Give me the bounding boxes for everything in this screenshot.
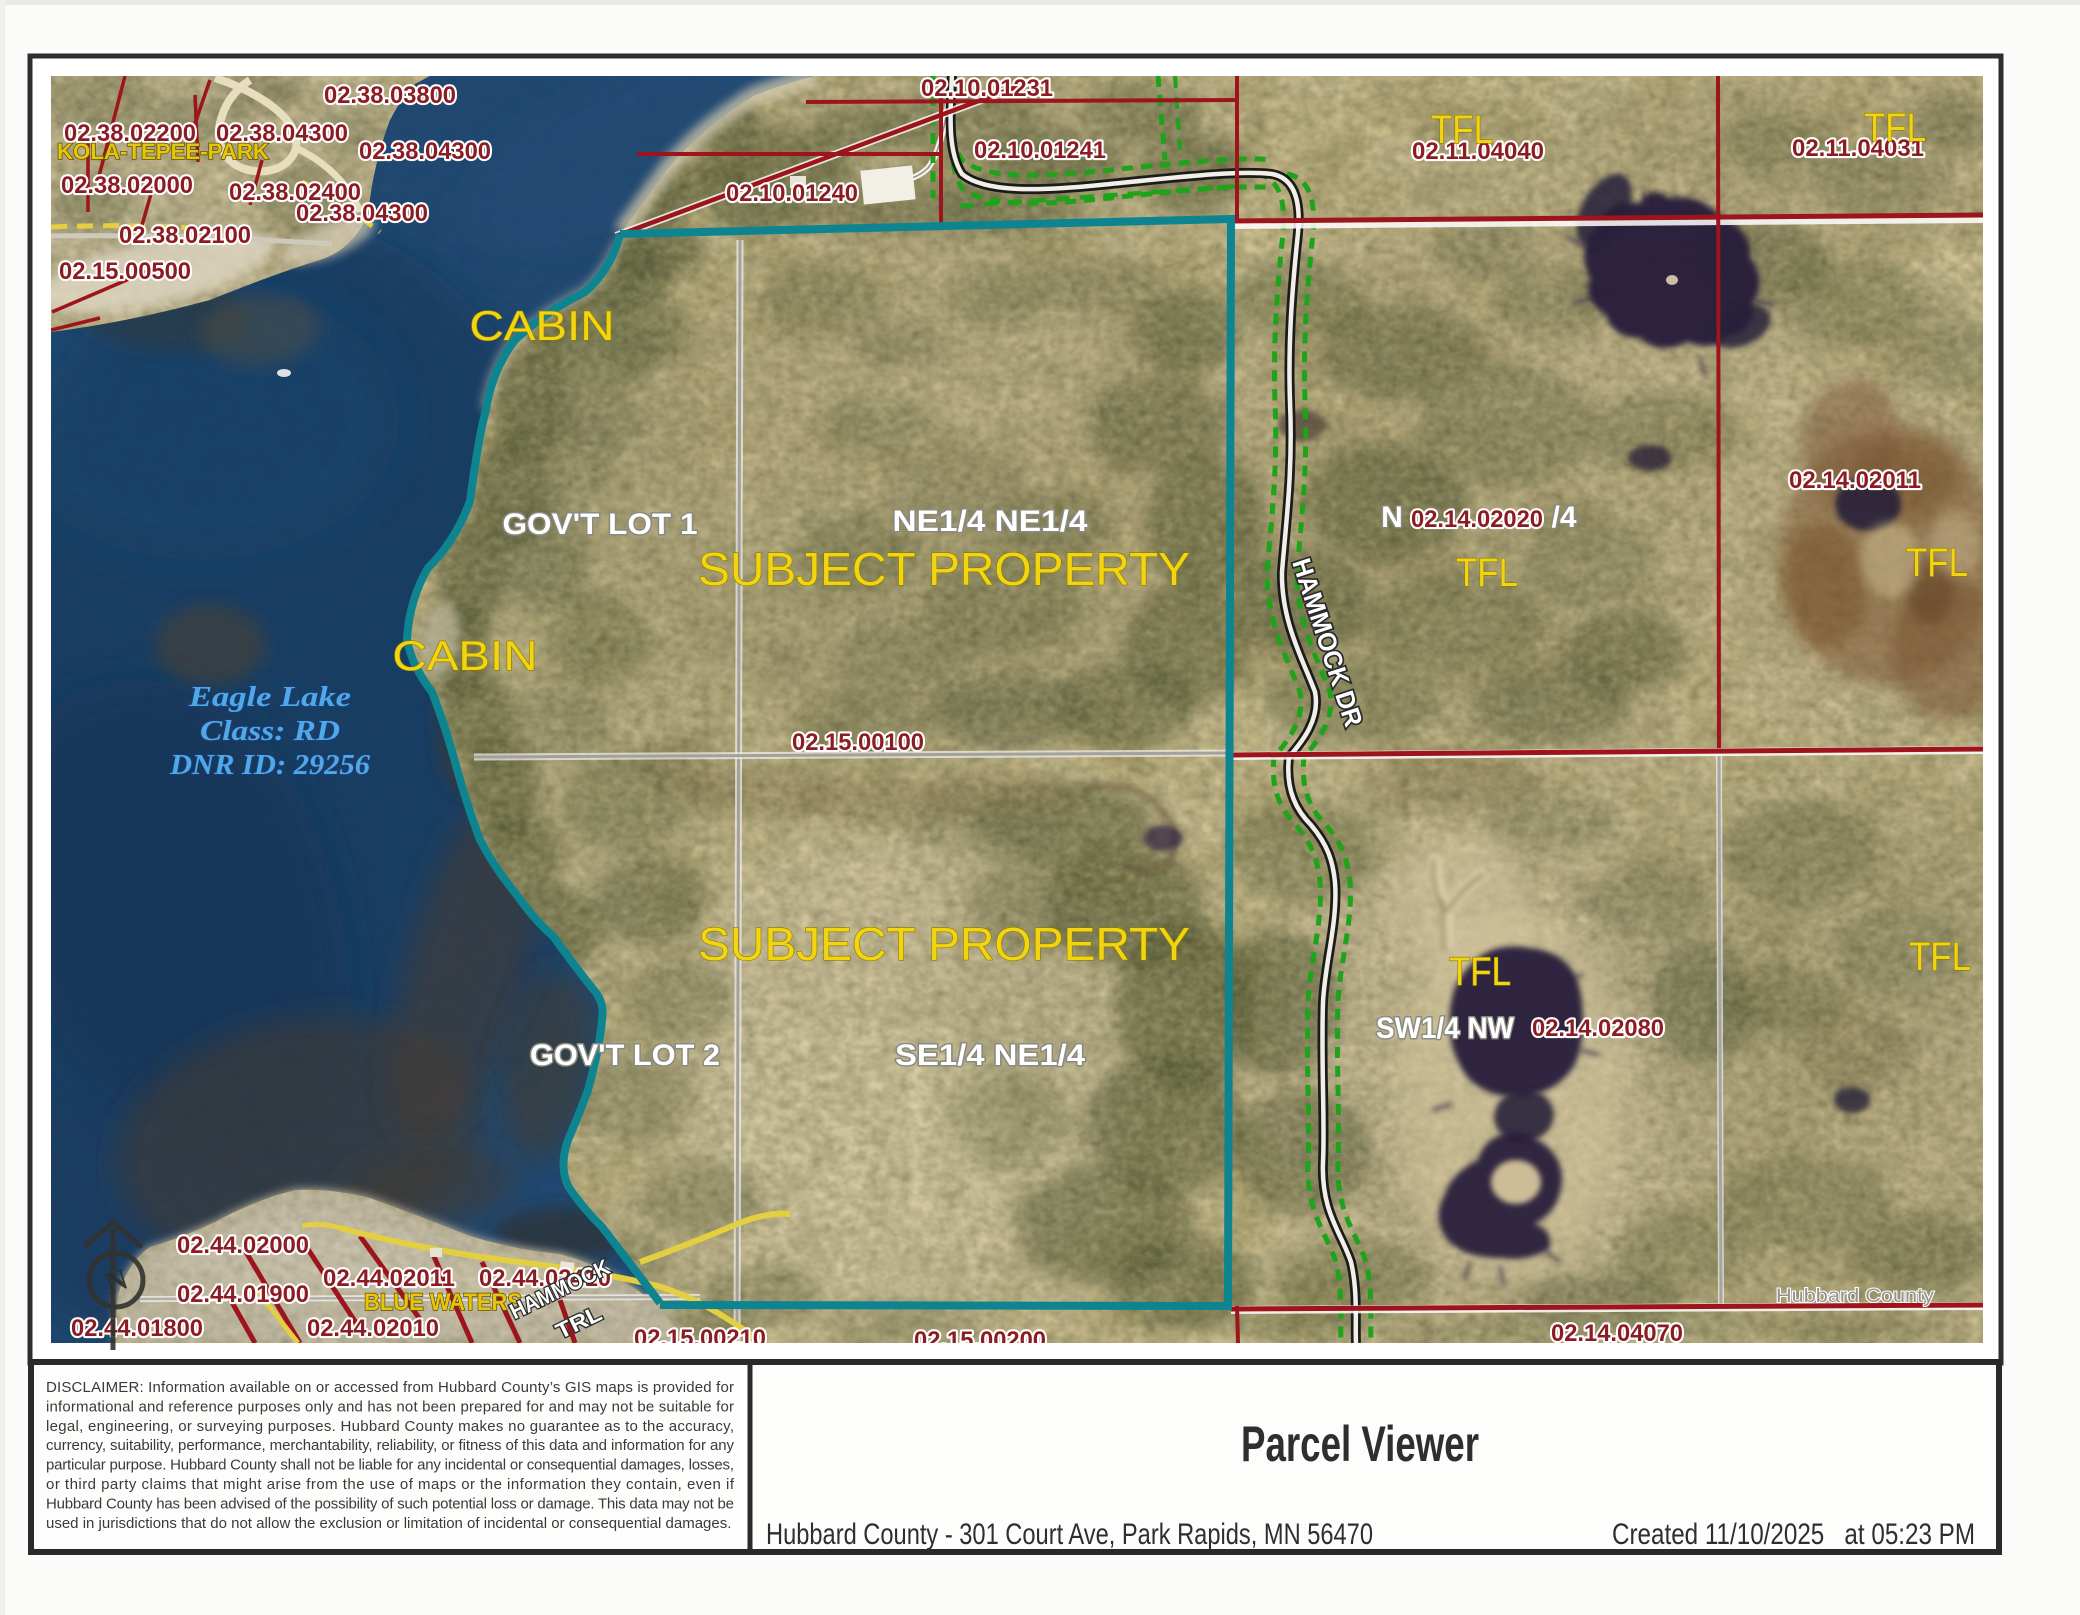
svg-text:GOV'T LOT 2: GOV'T LOT 2 xyxy=(530,1039,720,1072)
svg-text:02.44.02010: 02.44.02010 xyxy=(307,1315,439,1342)
svg-text:Hubbard County has been advise: Hubbard County has been advised of the p… xyxy=(46,1495,734,1512)
svg-text:02.15.00100: 02.15.00100 xyxy=(792,729,924,756)
svg-text:NE1/4 NE1/4: NE1/4 NE1/4 xyxy=(893,505,1088,538)
svg-text:Hubbard County - 301 Court Ave: Hubbard County - 301 Court Ave, Park Rap… xyxy=(766,1518,1373,1551)
svg-text:DNR ID: 29256: DNR ID: 29256 xyxy=(169,750,370,781)
svg-text:Parcel Viewer: Parcel Viewer xyxy=(1241,1416,1479,1472)
svg-text:02.38.02000: 02.38.02000 xyxy=(61,172,193,199)
svg-text:currency, suitability, perform: currency, suitability, performance, merc… xyxy=(46,1437,735,1454)
svg-text:02.44.01900: 02.44.01900 xyxy=(177,1281,309,1308)
svg-text:SW1/4 NW: SW1/4 NW xyxy=(1376,1012,1515,1045)
svg-text:Eagle Lake: Eagle Lake xyxy=(188,682,351,713)
svg-text:Class: RD: Class: RD xyxy=(200,716,340,747)
svg-text:02.38.03800: 02.38.03800 xyxy=(324,82,456,109)
svg-text:02.44.02011: 02.44.02011 xyxy=(323,1265,455,1292)
svg-text:02.44.01800: 02.44.01800 xyxy=(71,1315,203,1342)
svg-text:GOV'T LOT 1: GOV'T LOT 1 xyxy=(503,508,698,541)
svg-text:Created 11/10/2025 at 05:23: Created 11/10/2025 at 05:23 PM xyxy=(1612,1518,1975,1551)
svg-text:SE1/4 NE1/4: SE1/4 NE1/4 xyxy=(895,1039,1085,1072)
svg-text:TFL: TFL xyxy=(1864,106,1926,150)
svg-text:02.10.01240: 02.10.01240 xyxy=(726,180,858,207)
svg-text:used in jurisdictions that do: used in jurisdictions that do not allow … xyxy=(46,1515,731,1532)
svg-text:02.38.02100: 02.38.02100 xyxy=(119,222,251,249)
svg-text:N: N xyxy=(1381,501,1403,534)
svg-text:02.44.02000: 02.44.02000 xyxy=(177,1232,309,1259)
svg-text:TFL: TFL xyxy=(1909,935,1971,979)
svg-text:legal, engineering, or surv: legal, engineering, or surveying purpose… xyxy=(46,1418,734,1435)
svg-text:particular purpose. Hubbard C: particular purpose. Hubbard County shall… xyxy=(46,1457,734,1474)
svg-text:TFL: TFL xyxy=(1456,551,1518,595)
svg-text:02.15.00500: 02.15.00500 xyxy=(59,258,191,285)
svg-text:02.14.04070: 02.14.04070 xyxy=(1551,1320,1683,1347)
svg-text:DISCLAIMER: Information avai: DISCLAIMER: Information available on or … xyxy=(46,1379,734,1396)
svg-text:KOLA-TEPEE-PARK: KOLA-TEPEE-PARK xyxy=(57,139,269,164)
svg-text:02.14.02080: 02.14.02080 xyxy=(1532,1015,1664,1042)
svg-text:02.38.04300: 02.38.04300 xyxy=(296,200,428,227)
svg-text:02.38.04300: 02.38.04300 xyxy=(359,138,491,165)
svg-text:TFL: TFL xyxy=(1431,108,1493,152)
svg-text:02.14.02020: 02.14.02020 xyxy=(1411,506,1543,533)
svg-text:Hubbard County: Hubbard County xyxy=(1776,1286,1935,1307)
svg-text:SUBJECT PROPERTY: SUBJECT PROPERTY xyxy=(698,918,1190,970)
svg-text:02.10.01241: 02.10.01241 xyxy=(974,137,1106,164)
svg-text:CABIN: CABIN xyxy=(393,632,538,679)
svg-text:CABIN: CABIN xyxy=(470,302,615,349)
svg-text:SUBJECT PROPERTY: SUBJECT PROPERTY xyxy=(698,543,1190,595)
svg-text:TFL: TFL xyxy=(1449,950,1511,994)
svg-text:/4: /4 xyxy=(1551,501,1576,534)
svg-text:informational and reference pu: informational and reference purposes onl… xyxy=(46,1398,734,1415)
svg-text:02.14.02011: 02.14.02011 xyxy=(1789,467,1921,494)
svg-text:BLUE WATERS: BLUE WATERS xyxy=(364,1289,522,1316)
svg-text:TFL: TFL xyxy=(1906,541,1968,585)
svg-text:or third party claims that: or third party claims that might arise f… xyxy=(46,1476,735,1493)
svg-text:02.10.01231: 02.10.01231 xyxy=(921,75,1053,102)
